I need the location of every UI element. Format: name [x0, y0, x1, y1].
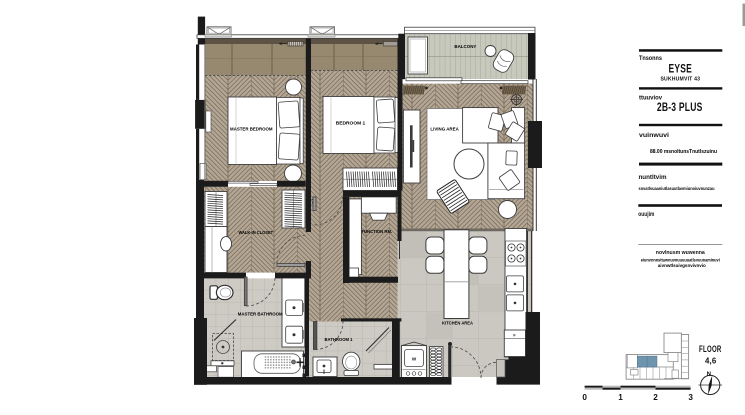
svg-text:eiunvnnnsttawnuvnuuuuuatlsvuun: eiunvnnnsttawnuvnuuuuuatlsvuunaminuvi	[641, 257, 720, 262]
svg-text:0: 0	[582, 393, 587, 402]
svg-text:FLOOR: FLOOR	[699, 344, 722, 354]
svg-text:aivnwtlsuivgsnvivnvio: aivnwtlsuivgsnvivnvio	[658, 263, 706, 268]
svg-text:vuinwuvi: vuinwuvi	[639, 132, 669, 139]
svg-text:88.00 msnoltunsTnutlszuinu: 88.00 msnoltunsTnutlszuinu	[650, 149, 717, 155]
svg-text:4,6: 4,6	[705, 357, 717, 366]
svg-text:2B-3 PLUS: 2B-3 PLUS	[657, 100, 703, 114]
svg-text:ouujim: ouujim	[638, 211, 654, 218]
svg-text:LIVING AREA: LIVING AREA	[430, 127, 458, 132]
svg-text:N: N	[707, 371, 711, 377]
svg-text:2: 2	[653, 393, 658, 402]
svg-text:Tnsonns: Tnsonns	[639, 55, 662, 62]
svg-text:novlnusm wuwenna: novlnusm wuwenna	[656, 250, 706, 256]
svg-text:SUKHUMVIT 43: SUKHUMVIT 43	[660, 77, 700, 83]
svg-text:W: W	[412, 357, 417, 362]
svg-text:nuntltvim: nuntltvim	[639, 174, 667, 181]
svg-text:snvatlsuaaniutlasuutlavmiunoiu: snvatlsuaaniutlasuutlavmiunoiuvnunzau	[639, 186, 715, 191]
svg-text:FUNCTION RM.: FUNCTION RM.	[361, 229, 392, 234]
svg-text:MASTER BEDROOM: MASTER BEDROOM	[230, 126, 273, 131]
svg-text:1: 1	[618, 393, 623, 402]
svg-text:BATHROOM 1: BATHROOM 1	[325, 337, 354, 342]
svg-text:BALCONY: BALCONY	[454, 44, 476, 49]
svg-text:KITCHEN AREA: KITCHEN AREA	[442, 321, 474, 326]
svg-text:MASTER BATHROOM: MASTER BATHROOM	[238, 312, 283, 317]
svg-text:EYSE: EYSE	[669, 62, 693, 76]
svg-text:WALK-IN CLOSET: WALK-IN CLOSET	[238, 230, 273, 235]
svg-text:BEDROOM 1: BEDROOM 1	[336, 121, 366, 126]
svg-text:3: 3	[688, 393, 693, 402]
